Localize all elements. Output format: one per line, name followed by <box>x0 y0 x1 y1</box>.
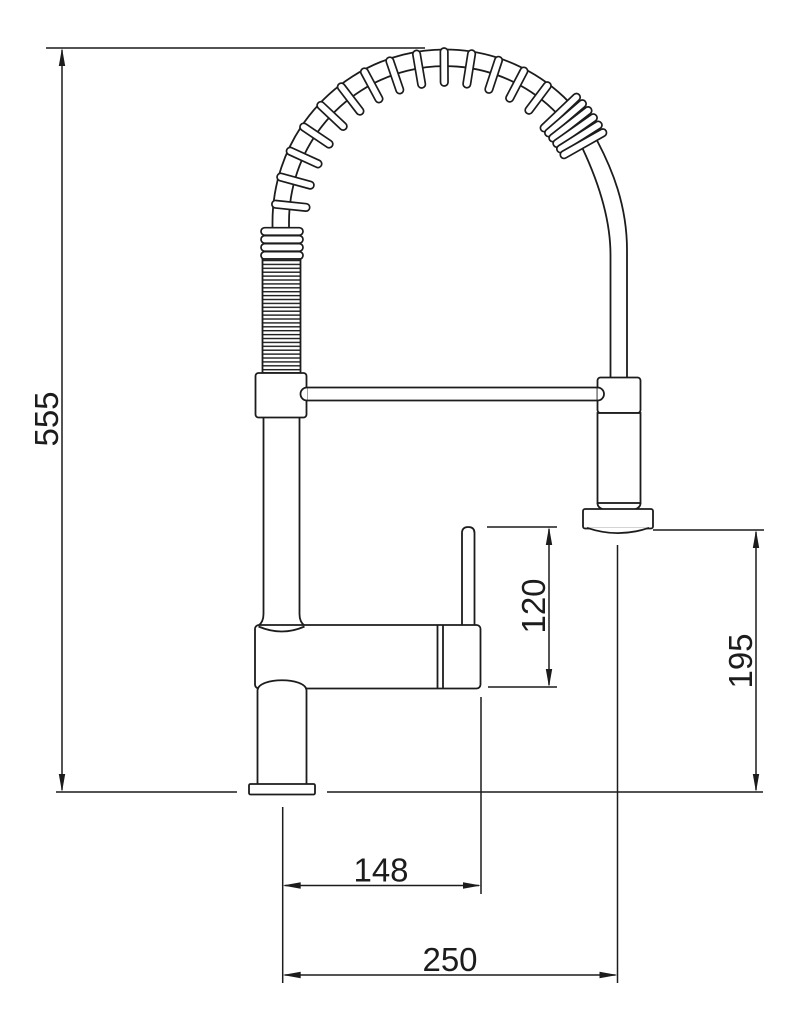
spray-head-body <box>598 413 641 503</box>
coil-ring <box>385 56 404 94</box>
base-flange <box>249 784 315 795</box>
support-bar-right-cap <box>598 388 605 401</box>
arrowhead-up-icon <box>753 530 759 548</box>
riser-left-edge <box>259 418 264 626</box>
spring-ring-stack <box>261 228 303 260</box>
arrowhead-right-icon <box>463 882 481 888</box>
body-cylinder <box>255 625 481 689</box>
spray-head-flange <box>583 509 653 529</box>
faucet-technical-drawing: 555 120 195 148 250 <box>0 0 800 1029</box>
coil-ring <box>336 82 365 117</box>
coil-ring <box>359 67 384 104</box>
faucet-body <box>255 625 481 689</box>
dimension-spray-outlet-clearance: 195 <box>653 530 764 792</box>
arrowhead-up-icon <box>59 48 65 66</box>
handle-lever <box>462 527 475 640</box>
coil-ring <box>261 252 303 260</box>
spring-winding-block <box>539 92 608 160</box>
arrowhead-left-icon <box>283 882 301 888</box>
dimension-overall-height-label: 555 <box>28 391 65 446</box>
coil-ring <box>524 81 553 116</box>
riser-right-edge <box>300 418 305 626</box>
dimension-handle-to-spout-drop: 120 <box>487 527 557 687</box>
faucet-technical-drawing-page: 555 120 195 148 250 <box>0 0 800 1029</box>
coil-ring <box>299 122 335 149</box>
arrowhead-down-icon <box>59 774 65 792</box>
arrowhead-left-icon <box>283 972 301 978</box>
coil-ring <box>484 56 503 94</box>
coil-ring <box>261 228 303 236</box>
spray-nozzle-face <box>587 528 649 533</box>
coil-ring <box>505 66 529 103</box>
dimension-spray-head-reach: 250 <box>283 545 618 983</box>
coil-ring <box>285 146 323 169</box>
faucet-base <box>249 680 315 794</box>
arrowhead-right-icon <box>600 972 618 978</box>
dimension-handle-to-spout-drop-label: 120 <box>515 578 552 633</box>
coil-ring <box>272 200 311 211</box>
arrowhead-down-icon <box>753 774 759 792</box>
coil-ring <box>440 48 448 86</box>
dimension-spray-head-reach-label: 250 <box>422 941 477 978</box>
arrowhead-down-icon <box>546 669 552 687</box>
spring-dense-coil <box>263 259 301 373</box>
arrowhead-up-icon <box>546 527 552 545</box>
coil-ring <box>261 236 303 244</box>
riser-column <box>259 418 305 626</box>
support-bar-left-cap <box>301 388 308 401</box>
coil-ring <box>261 244 303 252</box>
riser-collar <box>256 373 307 418</box>
spring-hose <box>261 48 627 378</box>
dimension-spray-outlet-clearance-label: 195 <box>722 633 759 688</box>
spring-coil-rings <box>272 48 553 212</box>
dimension-spout-reach-label: 148 <box>353 852 408 889</box>
support-bar <box>301 388 598 401</box>
